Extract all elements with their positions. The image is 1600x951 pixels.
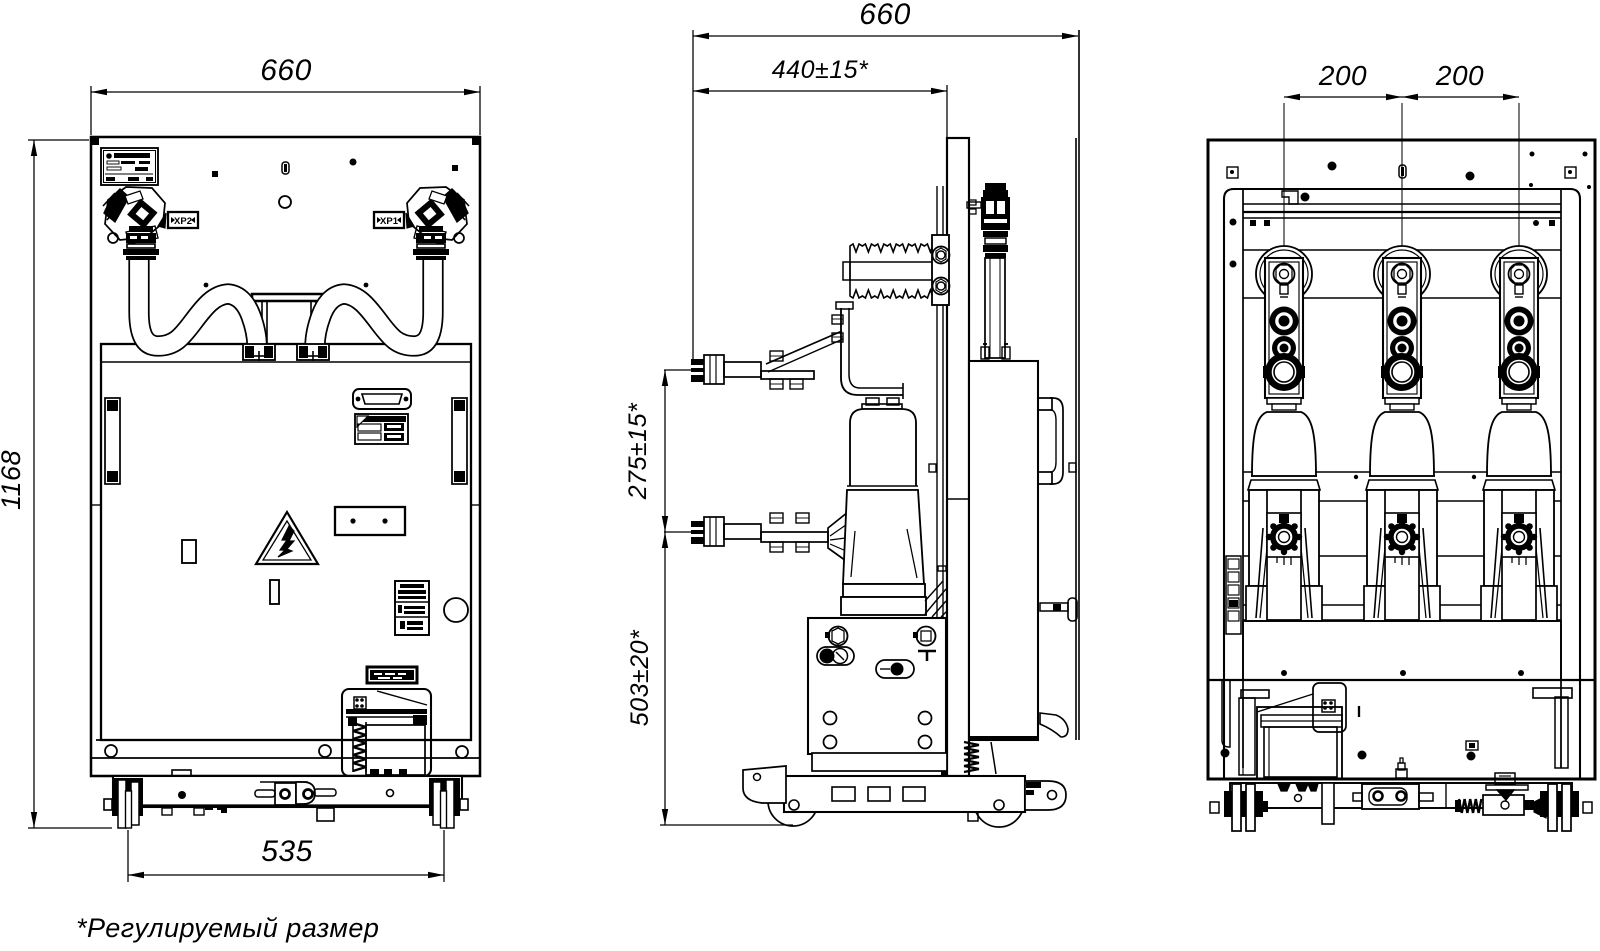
svg-text:200: 200: [1435, 60, 1484, 91]
svg-text:503±20*: 503±20*: [626, 629, 654, 726]
svg-text:*Регулируемый размер: *Регулируемый размер: [76, 913, 379, 943]
svg-text:200: 200: [1318, 60, 1367, 91]
svg-text:660: 660: [859, 0, 911, 31]
svg-text:660: 660: [260, 54, 312, 87]
svg-text:1168: 1168: [0, 450, 26, 510]
svg-text:535: 535: [261, 835, 313, 868]
svg-text:275±15*: 275±15*: [624, 402, 652, 500]
svg-text:XP2: XP2: [174, 216, 192, 227]
svg-text:440±15*: 440±15*: [772, 56, 869, 84]
svg-text:XP1: XP1: [380, 216, 399, 227]
